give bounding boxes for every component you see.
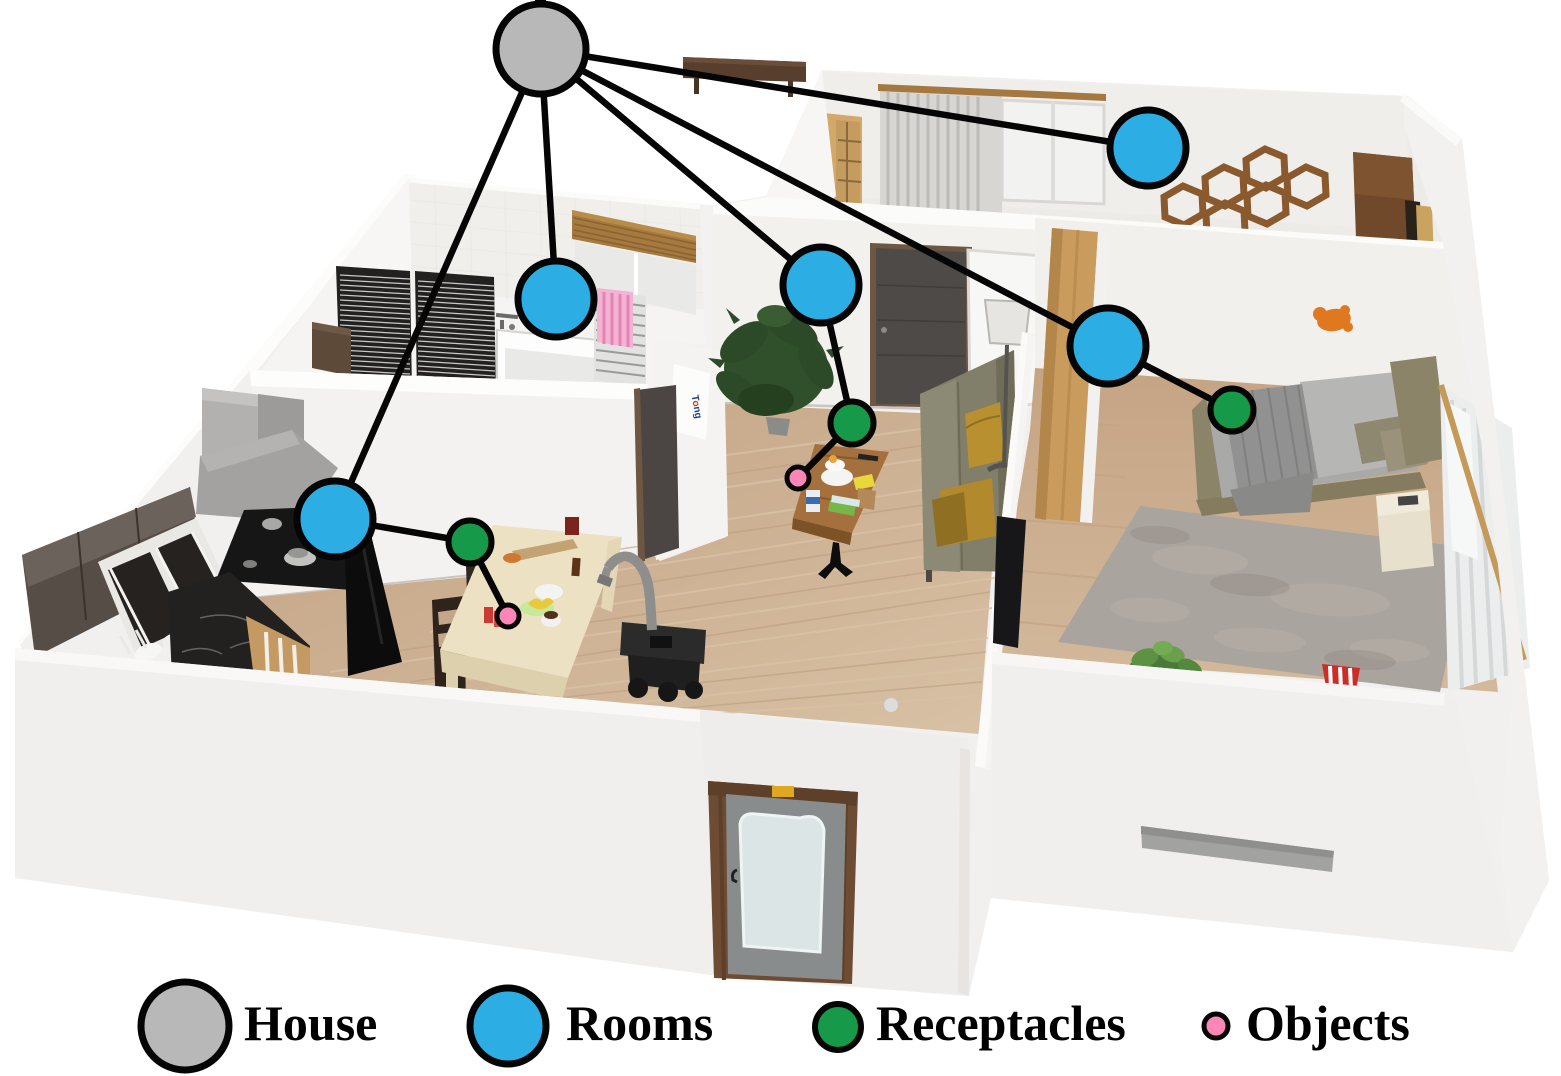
svg-text:Receptacles: Receptacles [876,995,1126,1051]
svg-text:Rooms: Rooms [566,995,713,1051]
svg-text:Objects: Objects [1246,995,1410,1051]
svg-text:House: House [244,995,377,1051]
